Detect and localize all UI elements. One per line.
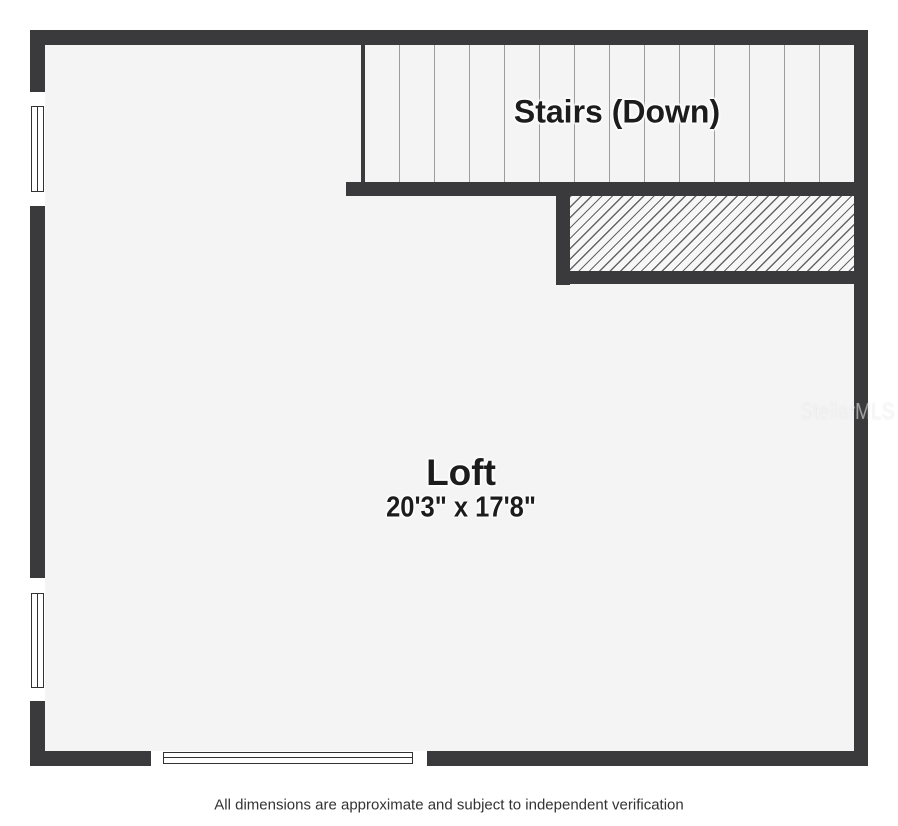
svg-text:StellarMLS: StellarMLS — [800, 398, 894, 424]
